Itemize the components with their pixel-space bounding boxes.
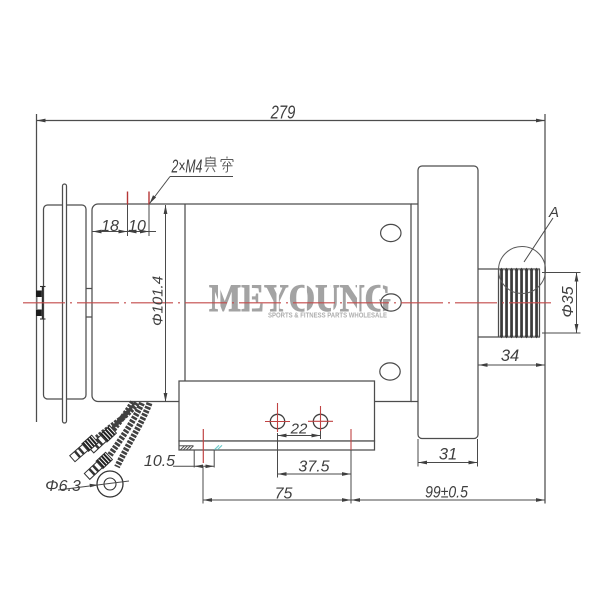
svg-text:18: 18	[101, 218, 119, 235]
svg-text:Φ6.3: Φ6.3	[45, 478, 81, 495]
svg-text:10: 10	[128, 218, 146, 235]
svg-text:10.5: 10.5	[144, 453, 175, 470]
svg-text:99±0.5: 99±0.5	[425, 483, 468, 501]
svg-text:34: 34	[501, 347, 519, 365]
svg-text:2×M4: 2×M4	[171, 157, 203, 177]
svg-text:Φ101.4: Φ101.4	[150, 276, 167, 326]
svg-text:22: 22	[290, 421, 308, 438]
svg-text:75: 75	[275, 486, 293, 503]
svg-text:A: A	[548, 204, 559, 221]
svg-text:Φ35: Φ35	[560, 286, 577, 317]
svg-text:279: 279	[270, 102, 296, 123]
svg-text:37.5: 37.5	[298, 459, 329, 476]
svg-text:SPORTS & FITNESS PARTS WHOLESA: SPORTS & FITNESS PARTS WHOLESALE	[268, 311, 387, 320]
svg-text:31: 31	[439, 446, 457, 464]
